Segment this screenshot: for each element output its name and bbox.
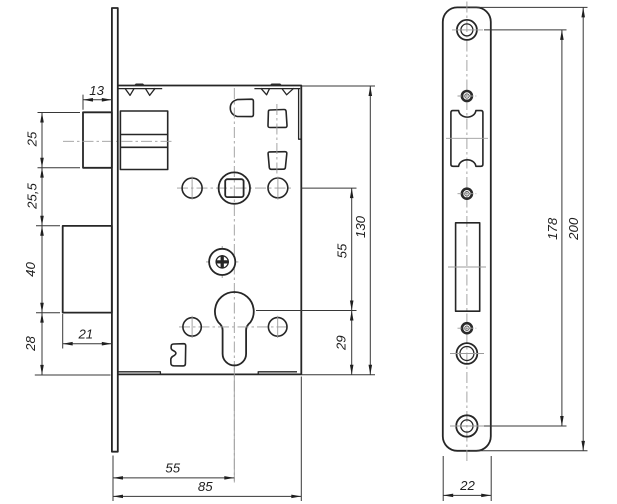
svg-text:21: 21 [77,326,93,341]
svg-text:200: 200 [566,217,581,241]
svg-text:25,5: 25,5 [24,183,39,210]
svg-text:55: 55 [165,461,180,476]
svg-text:85: 85 [198,479,213,494]
svg-text:28: 28 [23,336,38,352]
svg-text:22: 22 [459,478,475,493]
svg-text:55: 55 [335,243,350,258]
svg-text:178: 178 [545,217,560,240]
svg-text:29: 29 [334,335,349,351]
svg-text:40: 40 [23,262,38,277]
svg-text:130: 130 [353,215,368,238]
svg-text:25: 25 [24,131,39,147]
svg-text:13: 13 [89,83,104,98]
